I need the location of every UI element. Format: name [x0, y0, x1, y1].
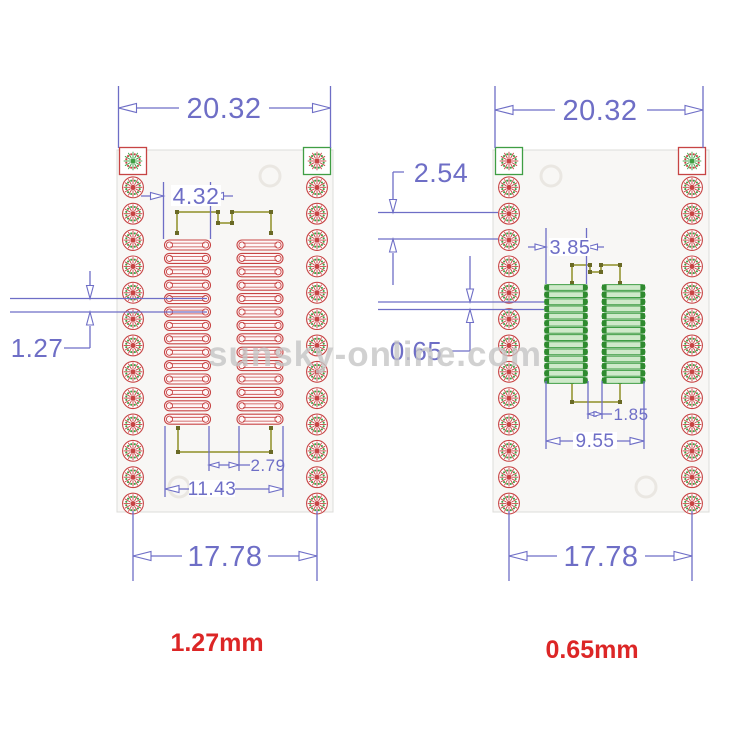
board-outline-right: [493, 150, 709, 512]
dimension-label: 9.55: [576, 431, 615, 452]
through-hole-pad: [499, 230, 520, 251]
smd-pad-red: [165, 401, 211, 411]
through-hole-pad: [307, 414, 328, 435]
smd-pad-green: [602, 313, 645, 319]
smd-pad-green: [545, 285, 588, 291]
dimension-row-span-right: 17.78: [509, 511, 692, 581]
through-hole-pad: [123, 388, 144, 409]
smd-pad-green: [602, 335, 645, 341]
through-hole-pad: [307, 309, 328, 330]
smd-pad-green: [545, 335, 588, 341]
smd-pad-red: [237, 414, 283, 424]
through-hole-pad: [682, 203, 703, 224]
smd-pad-green: [602, 356, 645, 362]
board-outline-left: [117, 150, 333, 512]
smd-pad-red: [237, 401, 283, 411]
dimension-hole-pitch-right: 2.54: [378, 158, 498, 285]
smd-pad-red: [237, 374, 283, 384]
through-hole-pad: [682, 282, 703, 303]
corner-square-pad: [304, 148, 331, 175]
board-left: [117, 148, 333, 514]
through-hole-pad: [682, 177, 703, 198]
smd-pad-red: [165, 267, 211, 277]
smd-pad-red: [237, 387, 283, 397]
through-hole-pad: [123, 230, 144, 251]
through-hole-pad: [123, 467, 144, 488]
arrowhead: [674, 552, 692, 561]
smd-pad-green: [545, 299, 588, 305]
through-hole-pad: [123, 414, 144, 435]
smd-pad-green: [545, 378, 588, 384]
arrowhead: [495, 106, 513, 115]
arrowhead: [313, 104, 331, 113]
corner-square-pad: [496, 148, 523, 175]
smd-pad-green: [545, 320, 588, 326]
arrowhead: [390, 239, 397, 252]
smd-pad-green: [545, 356, 588, 362]
arrowhead: [299, 552, 317, 561]
through-hole-pad: [682, 467, 703, 488]
dimension-label: 17.78: [187, 541, 262, 573]
arrowhead: [87, 286, 94, 299]
through-hole-pad: [123, 335, 144, 356]
smd-pad-green: [602, 320, 645, 326]
dimension-label: 20.32: [186, 93, 261, 125]
through-hole-pad: [499, 256, 520, 277]
through-hole-pad: [682, 361, 703, 382]
smd-pad-green: [602, 285, 645, 291]
arrowhead: [87, 312, 94, 325]
dimension-label: 4.32: [173, 183, 220, 209]
through-hole-pad: [682, 335, 703, 356]
through-hole-pad: [682, 388, 703, 409]
smd-pad-red: [165, 334, 211, 344]
smd-pad-green: [545, 306, 588, 312]
dimension-label: 20.32: [562, 95, 637, 127]
smd-pad-red: [165, 361, 211, 371]
through-hole-pad: [307, 177, 328, 198]
through-hole-pad: [499, 282, 520, 303]
through-hole-pad: [307, 440, 328, 461]
dimension-row-span-left: 17.78: [133, 511, 317, 581]
dimension-label: 1.27: [11, 333, 64, 363]
through-hole-pad: [123, 282, 144, 303]
through-hole-pad: [307, 256, 328, 277]
smd-pad-red: [165, 414, 211, 424]
through-hole-pad: [499, 440, 520, 461]
board-right: [493, 148, 709, 514]
smd-pad-red: [165, 347, 211, 357]
smd-pad-green: [602, 292, 645, 298]
through-hole-pad: [307, 282, 328, 303]
corner-square-pad: [679, 148, 706, 175]
through-hole-pad: [682, 440, 703, 461]
smd-pad-green: [545, 363, 588, 369]
arrowhead: [119, 104, 137, 113]
through-hole-pad: [123, 493, 144, 514]
dimension-label: 17.78: [563, 541, 638, 573]
smd-pad-red: [237, 307, 283, 317]
through-hole-pad: [123, 203, 144, 224]
dimension-label: 3.85: [550, 237, 591, 259]
through-hole-pad: [499, 388, 520, 409]
smd-pad-red: [237, 320, 283, 330]
arrowhead: [467, 310, 474, 323]
smd-pad-red: [165, 280, 211, 290]
arrowhead: [467, 289, 474, 302]
smd-pad-green: [602, 363, 645, 369]
smd-pad-red: [237, 253, 283, 263]
smd-pad-green: [545, 349, 588, 355]
through-hole-pad: [307, 493, 328, 514]
dimension-top-width-left: 20.32: [119, 86, 331, 148]
smd-pad-green: [602, 378, 645, 384]
dimension-label: 2.54: [414, 158, 469, 188]
smd-pad-green: [602, 370, 645, 376]
dimension-label: 2.79: [250, 456, 285, 475]
corner-square-pad: [120, 148, 147, 175]
through-hole-pad: [123, 440, 144, 461]
smd-pad-red: [237, 294, 283, 304]
smd-pad-red: [165, 387, 211, 397]
through-hole-pad: [307, 467, 328, 488]
through-hole-pad: [682, 256, 703, 277]
through-hole-pad: [123, 256, 144, 277]
through-hole-pad: [682, 493, 703, 514]
arrowhead: [133, 552, 151, 561]
through-hole-pad: [499, 414, 520, 435]
smd-pad-green: [602, 342, 645, 348]
smd-pad-green: [545, 292, 588, 298]
smd-pad-red: [237, 240, 283, 250]
diagram-canvas: 20.32 4.32 1.27 2.79 11.43 17.78: [0, 0, 750, 750]
smd-pad-red: [165, 320, 211, 330]
dimension-top-width-right: 20.32: [495, 86, 703, 148]
smd-pad-green: [545, 342, 588, 348]
arrowhead: [390, 200, 397, 213]
smd-pad-green: [602, 299, 645, 305]
smd-pad-red: [165, 374, 211, 384]
through-hole-pad: [499, 493, 520, 514]
smd-pad-green: [545, 328, 588, 334]
through-hole-pad: [499, 309, 520, 330]
smd-pad-red: [165, 253, 211, 263]
smd-pad-green: [602, 328, 645, 334]
through-hole-pad: [123, 361, 144, 382]
smd-pad-red: [165, 240, 211, 250]
through-hole-pad: [123, 177, 144, 198]
through-hole-pad: [682, 414, 703, 435]
smd-pad-green: [545, 313, 588, 319]
through-hole-pad: [307, 203, 328, 224]
dimension-label: 1.85: [613, 405, 648, 424]
caption-left-pitch: 1.27mm: [170, 629, 263, 657]
through-hole-pad: [307, 388, 328, 409]
through-hole-pad: [499, 467, 520, 488]
smd-pad-green: [545, 370, 588, 376]
through-hole-pad: [499, 203, 520, 224]
through-hole-pad: [499, 177, 520, 198]
pcb-adapter-diagram: 20.32 4.32 1.27 2.79 11.43 17.78: [0, 0, 750, 750]
through-hole-pad: [682, 309, 703, 330]
smd-pad-red: [237, 280, 283, 290]
through-hole-pad: [307, 230, 328, 251]
smd-pad-green: [602, 306, 645, 312]
smd-pad-red: [237, 267, 283, 277]
watermark: sunsky-online.com: [208, 335, 542, 374]
dimension-label: 11.43: [188, 479, 237, 500]
arrowhead: [685, 106, 703, 115]
caption-right-pitch: 0.65mm: [545, 636, 638, 664]
through-hole-pad: [682, 230, 703, 251]
dimension-lines: [378, 172, 498, 285]
smd-pad-green: [602, 349, 645, 355]
arrowhead: [509, 552, 527, 561]
